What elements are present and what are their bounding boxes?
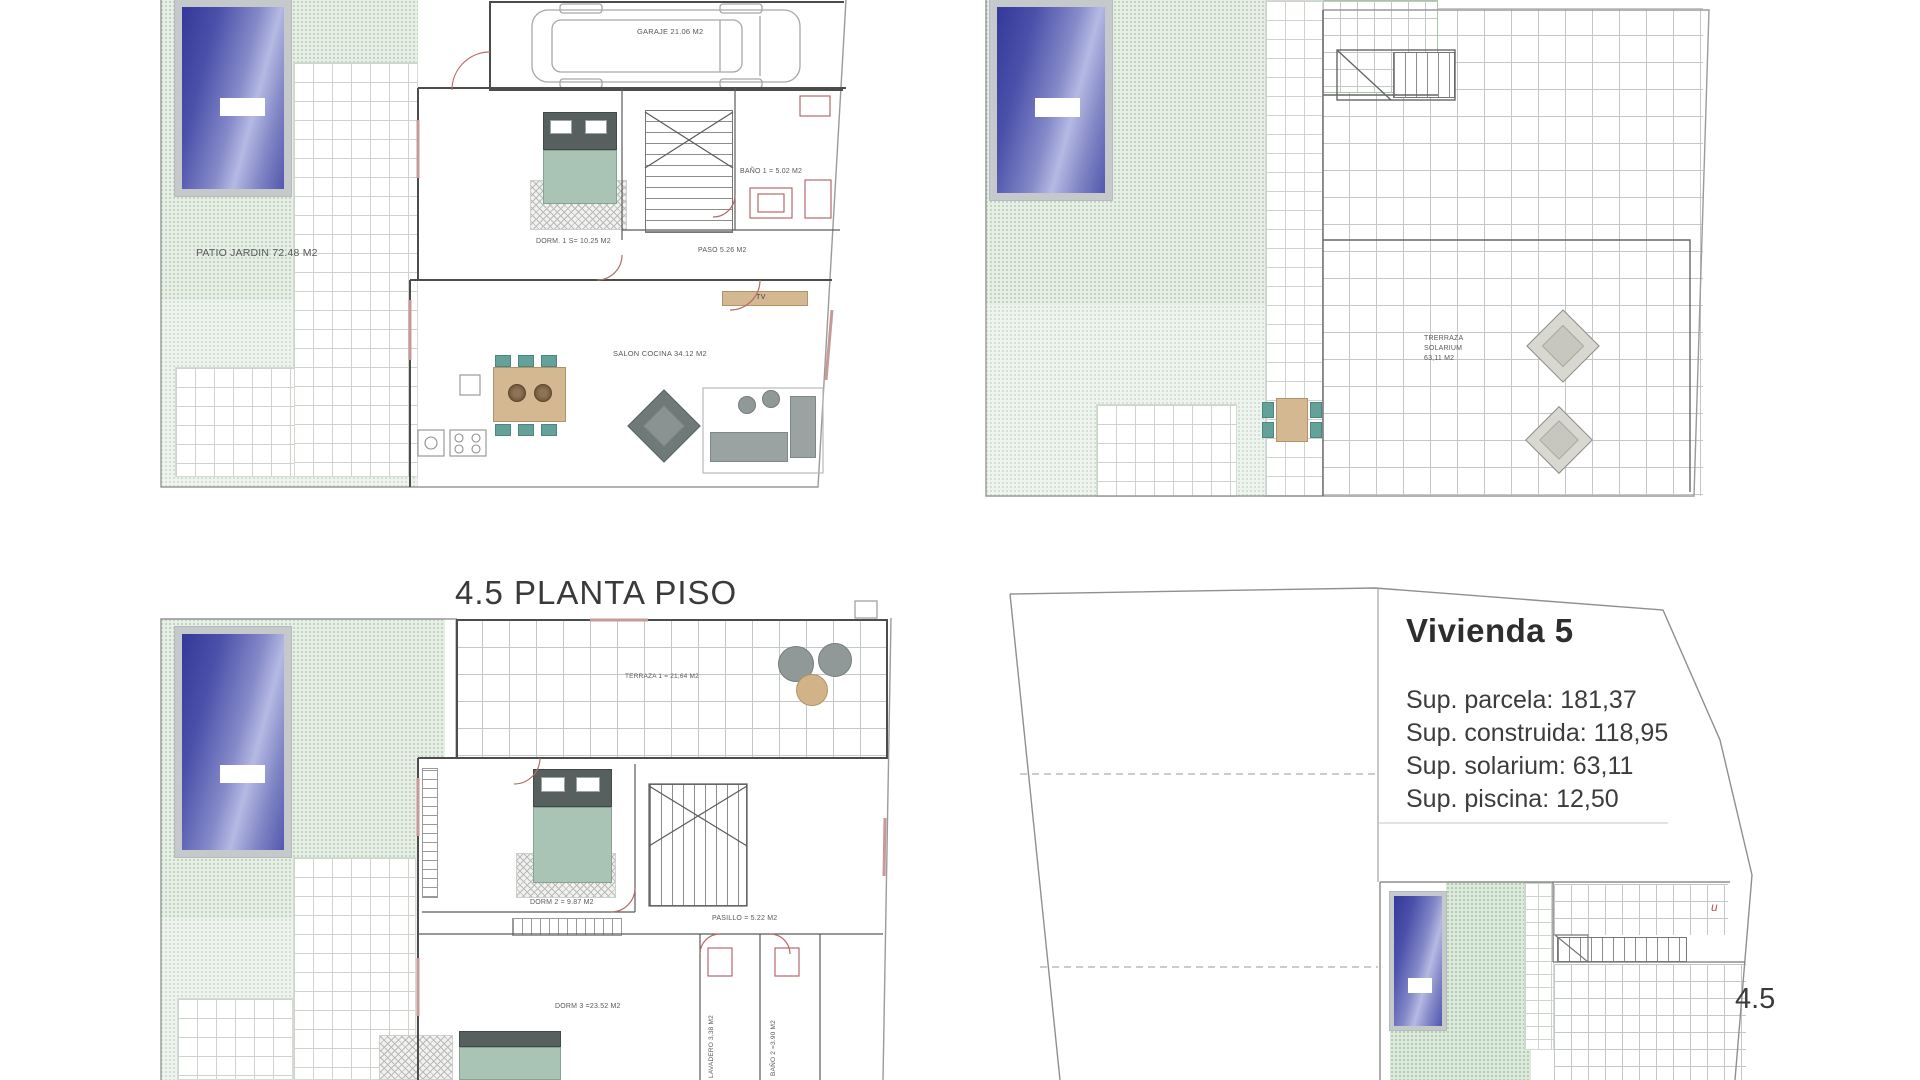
pool-step [220, 98, 265, 116]
pasillo-label: PASILLO = 5.22 M2 [712, 915, 777, 922]
first-floor-plan: TERRAZA 1 = 21,64 M2 DORM 2 = 9.87 M2 PA… [160, 618, 910, 1080]
dining-chair [518, 355, 534, 367]
roof-deck [1554, 964, 1746, 1080]
plot-number: 4.5 [1735, 983, 1775, 1016]
salon-label: SALON COCINA 34.12 M2 [613, 349, 707, 358]
pool-step [1408, 978, 1432, 993]
dorm1-label: DORM. 1 S= 10.25 M2 [536, 238, 611, 245]
tv-label: TV [756, 294, 766, 301]
pillow [585, 120, 607, 134]
patio-table [1276, 398, 1308, 442]
swimming-pool [175, 627, 291, 857]
bedroom-rug [379, 1035, 453, 1080]
lounger-inner [1539, 420, 1578, 459]
surface-info: Sup. parcela: 181,37 Sup. construida: 11… [1406, 684, 1668, 816]
cad-artifact-mark: u [1711, 900, 1718, 914]
terrace-chair [818, 643, 852, 677]
tile-path [175, 367, 295, 477]
plate [534, 384, 552, 402]
tile-path [1096, 404, 1237, 497]
swimming-pool [1390, 892, 1446, 1030]
staircase [645, 110, 733, 233]
staircase [1557, 937, 1687, 962]
garden-area [1390, 1030, 1531, 1080]
pool-step [220, 765, 265, 783]
terraza1-label: TERRAZA 1 = 21,64 M2 [625, 673, 699, 680]
solarium-label-line2: SOLARIUM [1424, 344, 1463, 354]
bano2-label: BAÑO 2 =3.90 M2 [770, 986, 777, 1076]
plan-title: 4.5 PLANTA PISO [455, 574, 737, 612]
patio-chair [1310, 402, 1322, 418]
bed-headboard [459, 1031, 561, 1047]
pillow [541, 777, 565, 792]
terrace-table [796, 674, 828, 706]
solarium-plan: TRERRAZA SOLARIUM 63,11 M2 [985, 0, 1721, 497]
patio-chair [1310, 422, 1322, 438]
side-table [738, 396, 756, 414]
bano1-label: BAÑO 1 = 5.02 M2 [740, 168, 802, 175]
plot-plan: Vivienda 5 Sup. parcela: 181,37 Sup. con… [1008, 588, 1778, 1080]
roof-deck [1554, 884, 1728, 935]
tile-path [177, 998, 293, 1080]
plate [508, 384, 526, 402]
paso-label: PASO 5.26 M2 [698, 247, 747, 254]
floorplan-sheet: TV [0, 0, 1920, 1080]
solarium-label-line3: 63,11 M2 [1424, 354, 1463, 364]
dining-table [493, 367, 566, 422]
house-title: Vivienda 5 [1406, 612, 1574, 650]
staircase [1393, 52, 1455, 98]
side-table [762, 390, 780, 408]
garage-label: GARAJE 21.06 M2 [637, 27, 703, 36]
dining-chair [495, 355, 511, 367]
tile-path [293, 62, 418, 477]
bed-mattress [459, 1047, 561, 1080]
solarium-label: TRERRAZA SOLARIUM 63,11 M2 [1424, 334, 1463, 364]
surface-piscina: Sup. piscina: 12,50 [1406, 783, 1668, 816]
patio-chair [1262, 422, 1274, 438]
staircase [649, 784, 747, 906]
patio-chair [1262, 402, 1274, 418]
pillow [576, 777, 600, 792]
wardrobe [512, 918, 622, 936]
dorm2-label: DORM 2 = 9.87 M2 [530, 899, 594, 906]
sofa [790, 396, 816, 458]
dining-chair [541, 355, 557, 367]
lounger-inner [1542, 325, 1584, 367]
surface-solarium: Sup. solarium: 63,11 [1406, 750, 1668, 783]
dining-chair [518, 424, 534, 436]
surface-construida: Sup. construida: 118,95 [1406, 717, 1668, 750]
rug-inner [643, 405, 685, 447]
solarium-label-line1: TRERRAZA [1424, 334, 1463, 344]
dining-chair [541, 424, 557, 436]
pool-step [1035, 98, 1080, 117]
lavadero-label: LAVADERO 3,38 M2 [708, 988, 715, 1078]
bed-mattress [533, 807, 612, 883]
surface-parcela: Sup. parcela: 181,37 [1406, 684, 1668, 717]
bed-mattress [543, 150, 617, 204]
house-footprint [418, 0, 846, 487]
patio-garden-label: PATIO JARDIN 72.48 M2 [196, 247, 318, 259]
pillow [550, 120, 572, 134]
dining-chair [495, 424, 511, 436]
dorm3-label: DORM 3 =23.52 M2 [555, 1003, 621, 1010]
sofa [710, 432, 788, 462]
wardrobe [422, 768, 438, 898]
tile-path [1524, 882, 1554, 1050]
ground-floor-plan: TV [160, 0, 846, 492]
